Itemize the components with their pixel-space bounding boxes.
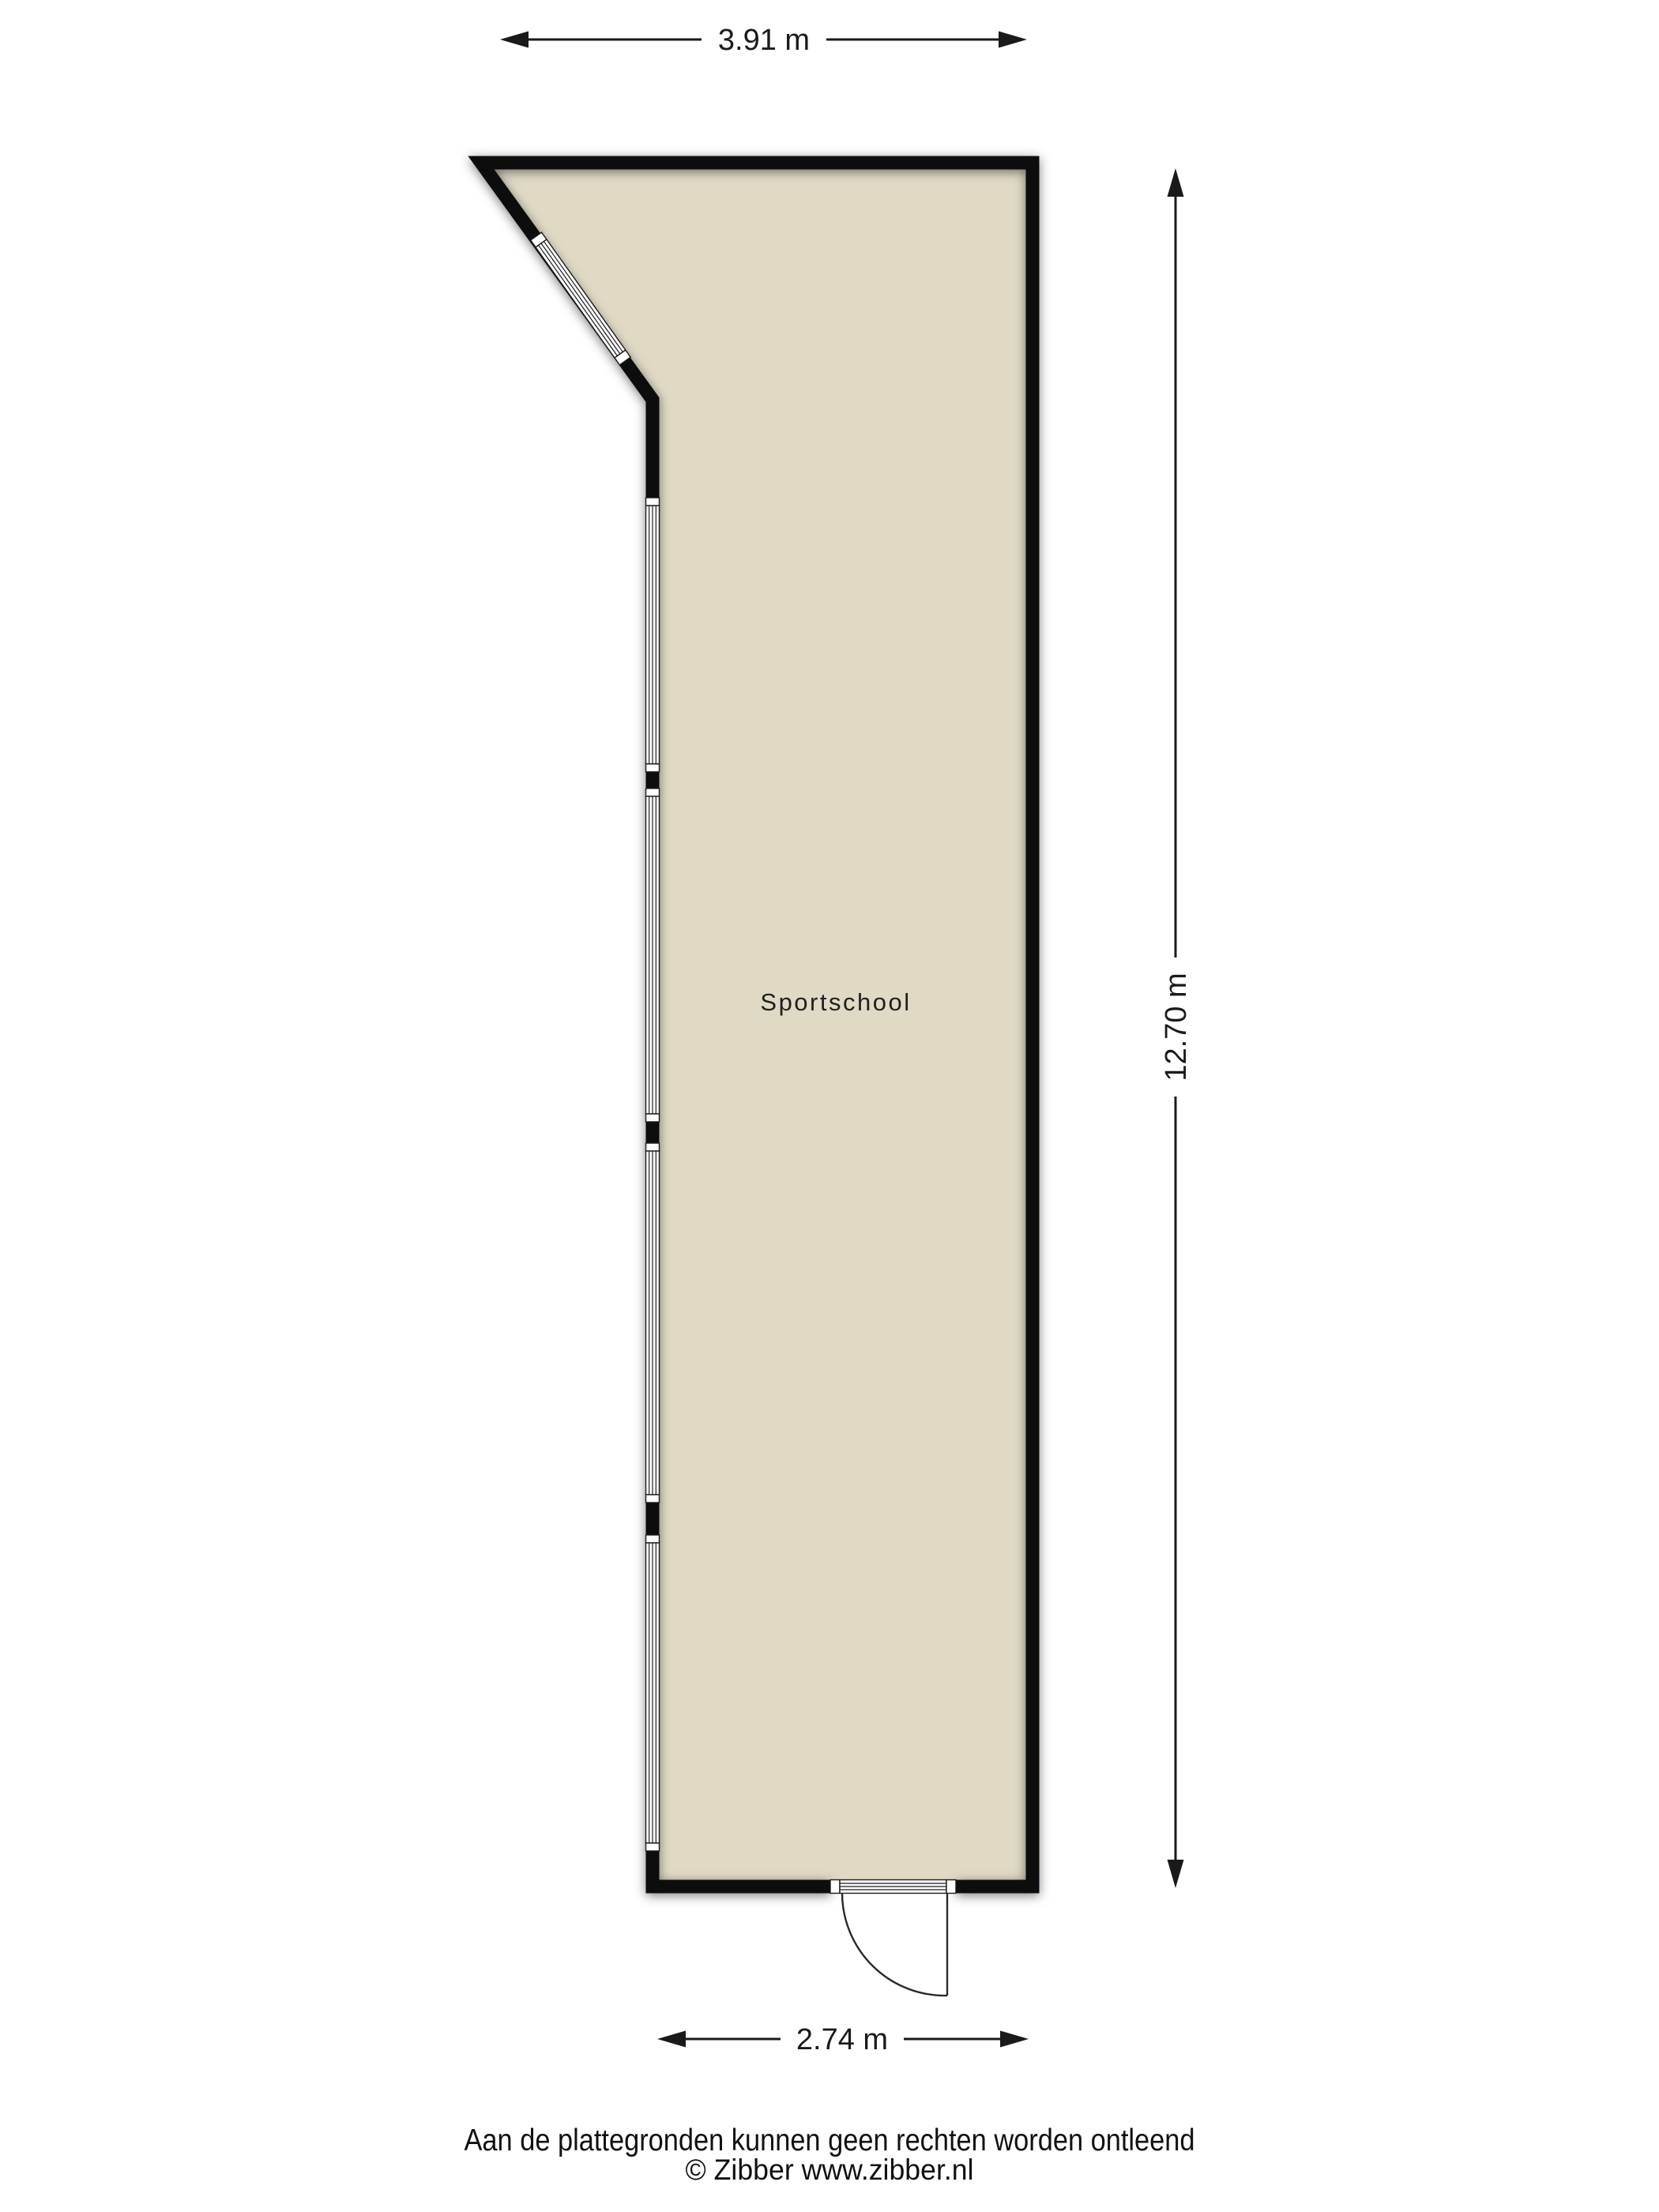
dimension-bottom: 2.74 m xyxy=(657,2023,1029,2056)
footer-copyright: © Zibber www.zibber.nl xyxy=(686,2154,974,2186)
dimension-top: 3.91 m xyxy=(500,24,1027,57)
door-swing-arc xyxy=(842,1893,947,1996)
dimension-right: 12.70 m xyxy=(1160,168,1193,1888)
floor-plan-svg: 3.91 m 12.70 m 2.74 m Sportschool Aan de… xyxy=(0,0,1659,2212)
window-left-2 xyxy=(646,788,660,1122)
window-left-4 xyxy=(646,1535,660,1851)
room-floor xyxy=(481,163,1033,1887)
window-left-3 xyxy=(646,1143,660,1503)
door-threshold xyxy=(840,1880,946,1894)
dimension-right-label: 12.70 m xyxy=(1160,972,1193,1081)
room-label: Sportschool xyxy=(760,988,911,1016)
door-jamb-left xyxy=(830,1880,840,1894)
dimension-top-label: 3.91 m xyxy=(718,24,810,57)
dimension-bottom-label: 2.74 m xyxy=(796,2023,888,2056)
floorplan-page: 3.91 m 12.70 m 2.74 m Sportschool Aan de… xyxy=(0,0,1659,2212)
door-jamb-right xyxy=(946,1880,956,1894)
footer-disclaimer: Aan de plattegronden kunnen geen rechten… xyxy=(465,2124,1195,2157)
window-left-1 xyxy=(646,498,660,772)
entry-door xyxy=(830,1880,956,1996)
